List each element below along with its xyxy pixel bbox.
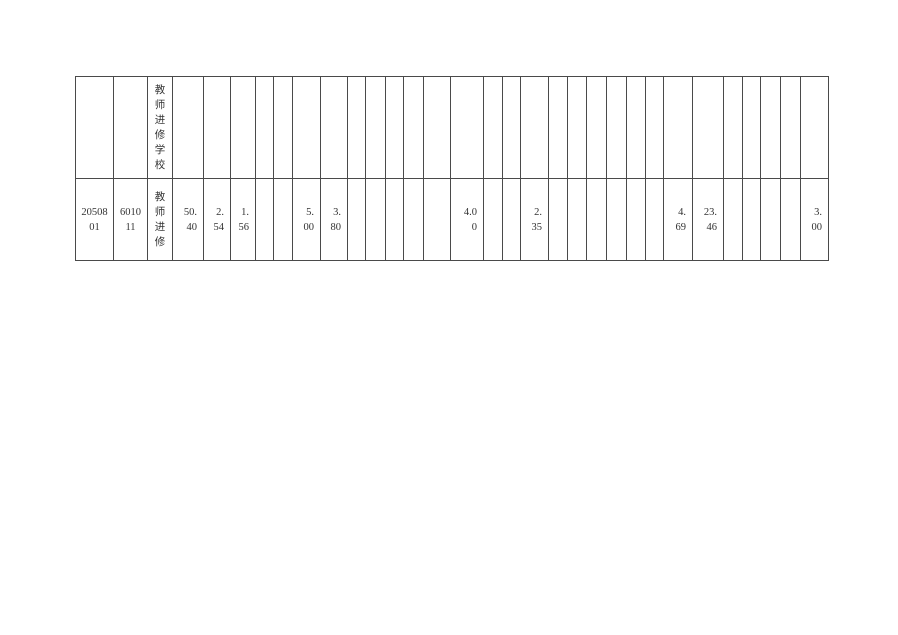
cell-r2c13 (386, 179, 404, 261)
cell-r1c6 (231, 77, 256, 179)
cell-r1c25 (646, 77, 664, 179)
cell-text: 20508 01 (76, 205, 113, 235)
cell-r1c19 (521, 77, 549, 179)
cell-r1c18 (503, 77, 521, 179)
cell-r1c12 (366, 77, 386, 179)
cell-r1c32 (801, 77, 829, 179)
table-body: 教 师 进 修 学 校20508 016010 11教 师 进 修50. 402… (76, 77, 829, 261)
cell-text: 1. 56 (231, 205, 255, 235)
cell-r1c10 (321, 77, 348, 179)
cell-r2c23 (607, 179, 627, 261)
cell-r2c10: 3. 80 (321, 179, 348, 261)
cell-r2c19: 2. 35 (521, 179, 549, 261)
cell-r2c20 (549, 179, 568, 261)
cell-r1c17 (484, 77, 503, 179)
cell-r1c20 (549, 77, 568, 179)
cell-r2c30 (761, 179, 781, 261)
cell-text: 3. 00 (801, 205, 828, 235)
cell-r2c21 (568, 179, 587, 261)
cell-text: 23. 46 (693, 205, 723, 235)
cell-text: 4. 69 (664, 205, 692, 235)
cell-text: 教 师 进 修 (148, 190, 172, 250)
cell-r1c28 (724, 77, 743, 179)
cell-r1c27 (693, 77, 724, 179)
cell-r2c27: 23. 46 (693, 179, 724, 261)
cell-r1c15 (424, 77, 451, 179)
cell-r2c15 (424, 179, 451, 261)
cell-r2c14 (404, 179, 424, 261)
cell-r2c3: 教 师 进 修 (148, 179, 173, 261)
data-row: 20508 016010 11教 师 进 修50. 402. 541. 565.… (76, 179, 829, 261)
cell-r2c1: 20508 01 (76, 179, 114, 261)
cell-r1c23 (607, 77, 627, 179)
cell-r2c28 (724, 179, 743, 261)
cell-r2c32: 3. 00 (801, 179, 829, 261)
cell-text: 教 师 进 修 学 校 (148, 82, 172, 173)
cell-r1c1 (76, 77, 114, 179)
cell-r2c7 (256, 179, 274, 261)
document-page: 教 师 进 修 学 校20508 016010 11教 师 进 修50. 402… (0, 0, 898, 635)
cell-text: 2. 54 (204, 205, 230, 235)
cell-r1c5 (204, 77, 231, 179)
cell-text: 50. 40 (173, 205, 203, 235)
cell-r2c4: 50. 40 (173, 179, 204, 261)
cell-r1c2 (114, 77, 148, 179)
cell-r1c30 (761, 77, 781, 179)
cell-r1c14 (404, 77, 424, 179)
cell-r2c17 (484, 179, 503, 261)
cell-r1c4 (173, 77, 204, 179)
cell-r2c22 (587, 179, 607, 261)
cell-r2c25 (646, 179, 664, 261)
cell-r1c29 (743, 77, 761, 179)
cell-r2c9: 5. 00 (293, 179, 321, 261)
cell-r2c16: 4.0 0 (451, 179, 484, 261)
cell-text: 2. 35 (521, 205, 548, 235)
cell-text: 4.0 0 (451, 205, 483, 235)
cell-r2c29 (743, 179, 761, 261)
cell-r1c13 (386, 77, 404, 179)
cell-text: 5. 00 (293, 205, 320, 235)
cell-r1c8 (274, 77, 293, 179)
cell-r1c7 (256, 77, 274, 179)
cell-r1c22 (587, 77, 607, 179)
cell-text: 3. 80 (321, 205, 347, 235)
cell-r2c8 (274, 179, 293, 261)
cell-r1c16 (451, 77, 484, 179)
cell-r1c21 (568, 77, 587, 179)
cell-r1c9 (293, 77, 321, 179)
cell-r2c24 (627, 179, 646, 261)
cell-r1c3: 教 师 进 修 学 校 (148, 77, 173, 179)
cell-r2c12 (366, 179, 386, 261)
cell-r1c11 (348, 77, 366, 179)
cell-r2c26: 4. 69 (664, 179, 693, 261)
data-table: 教 师 进 修 学 校20508 016010 11教 师 进 修50. 402… (75, 76, 829, 261)
cell-r2c2: 6010 11 (114, 179, 148, 261)
cell-r2c5: 2. 54 (204, 179, 231, 261)
carryover-row: 教 师 进 修 学 校 (76, 77, 829, 179)
cell-r1c31 (781, 77, 801, 179)
cell-r2c18 (503, 179, 521, 261)
cell-r2c6: 1. 56 (231, 179, 256, 261)
cell-r1c26 (664, 77, 693, 179)
cell-r2c31 (781, 179, 801, 261)
cell-text: 6010 11 (114, 205, 147, 235)
cell-r1c24 (627, 77, 646, 179)
cell-r2c11 (348, 179, 366, 261)
